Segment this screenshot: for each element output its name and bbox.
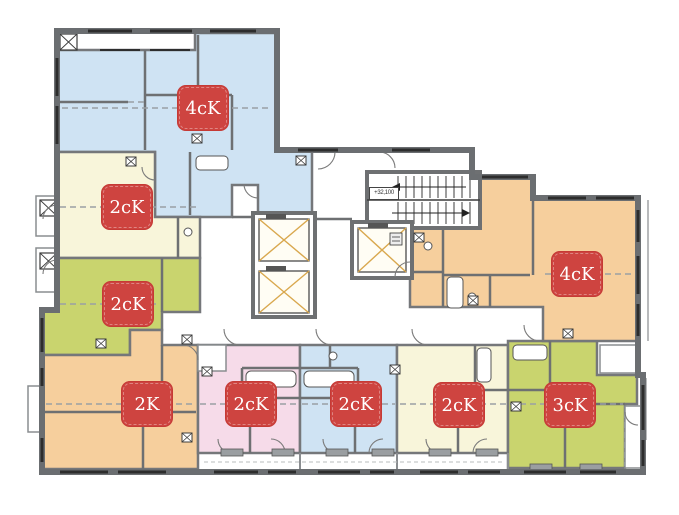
toilet-icon <box>424 242 432 250</box>
bathtub-icon <box>447 277 463 308</box>
bathtub-icon <box>196 156 228 170</box>
floor-plan-page: 4cK 2cK 2cK 2K 2cK 2cK 2cK 3cK 4cK +32,1… <box>0 0 679 515</box>
apartment-label-2k-bottom-left[interactable]: 2K <box>121 381 173 427</box>
apartment-label-2ck-left-upper[interactable]: 2cK <box>101 184 153 230</box>
bathtub-icon <box>477 348 491 382</box>
apartment-label-2ck-bottom-cream[interactable]: 2cK <box>433 382 485 428</box>
toilet-icon <box>184 228 192 236</box>
elevation-label: +32,100 <box>369 187 399 200</box>
elevator-cabin-left-2 <box>259 266 309 313</box>
elevator-cabin-left-1 <box>259 214 309 261</box>
elevator-cabin-right <box>352 222 412 278</box>
hoistway-grid-icon <box>390 233 402 245</box>
balcony-right-mid <box>600 345 636 373</box>
staircase <box>367 172 480 228</box>
bathtub-icon <box>513 345 547 360</box>
toilet-icon <box>329 352 337 360</box>
apartment-label-2ck-bottom-blue[interactable]: 2cK <box>330 381 382 427</box>
apartment-label-2ck-left-lower[interactable]: 2cK <box>102 281 154 327</box>
apartment-label-2ck-bottom-pink[interactable]: 2cK <box>225 381 277 427</box>
apartment-label-4ck-right[interactable]: 4cK <box>551 251 603 297</box>
apartment-label-3ck-bottom-right[interactable]: 3cK <box>544 382 596 428</box>
apartment-label-4ck-top-left[interactable]: 4cK <box>177 85 229 131</box>
